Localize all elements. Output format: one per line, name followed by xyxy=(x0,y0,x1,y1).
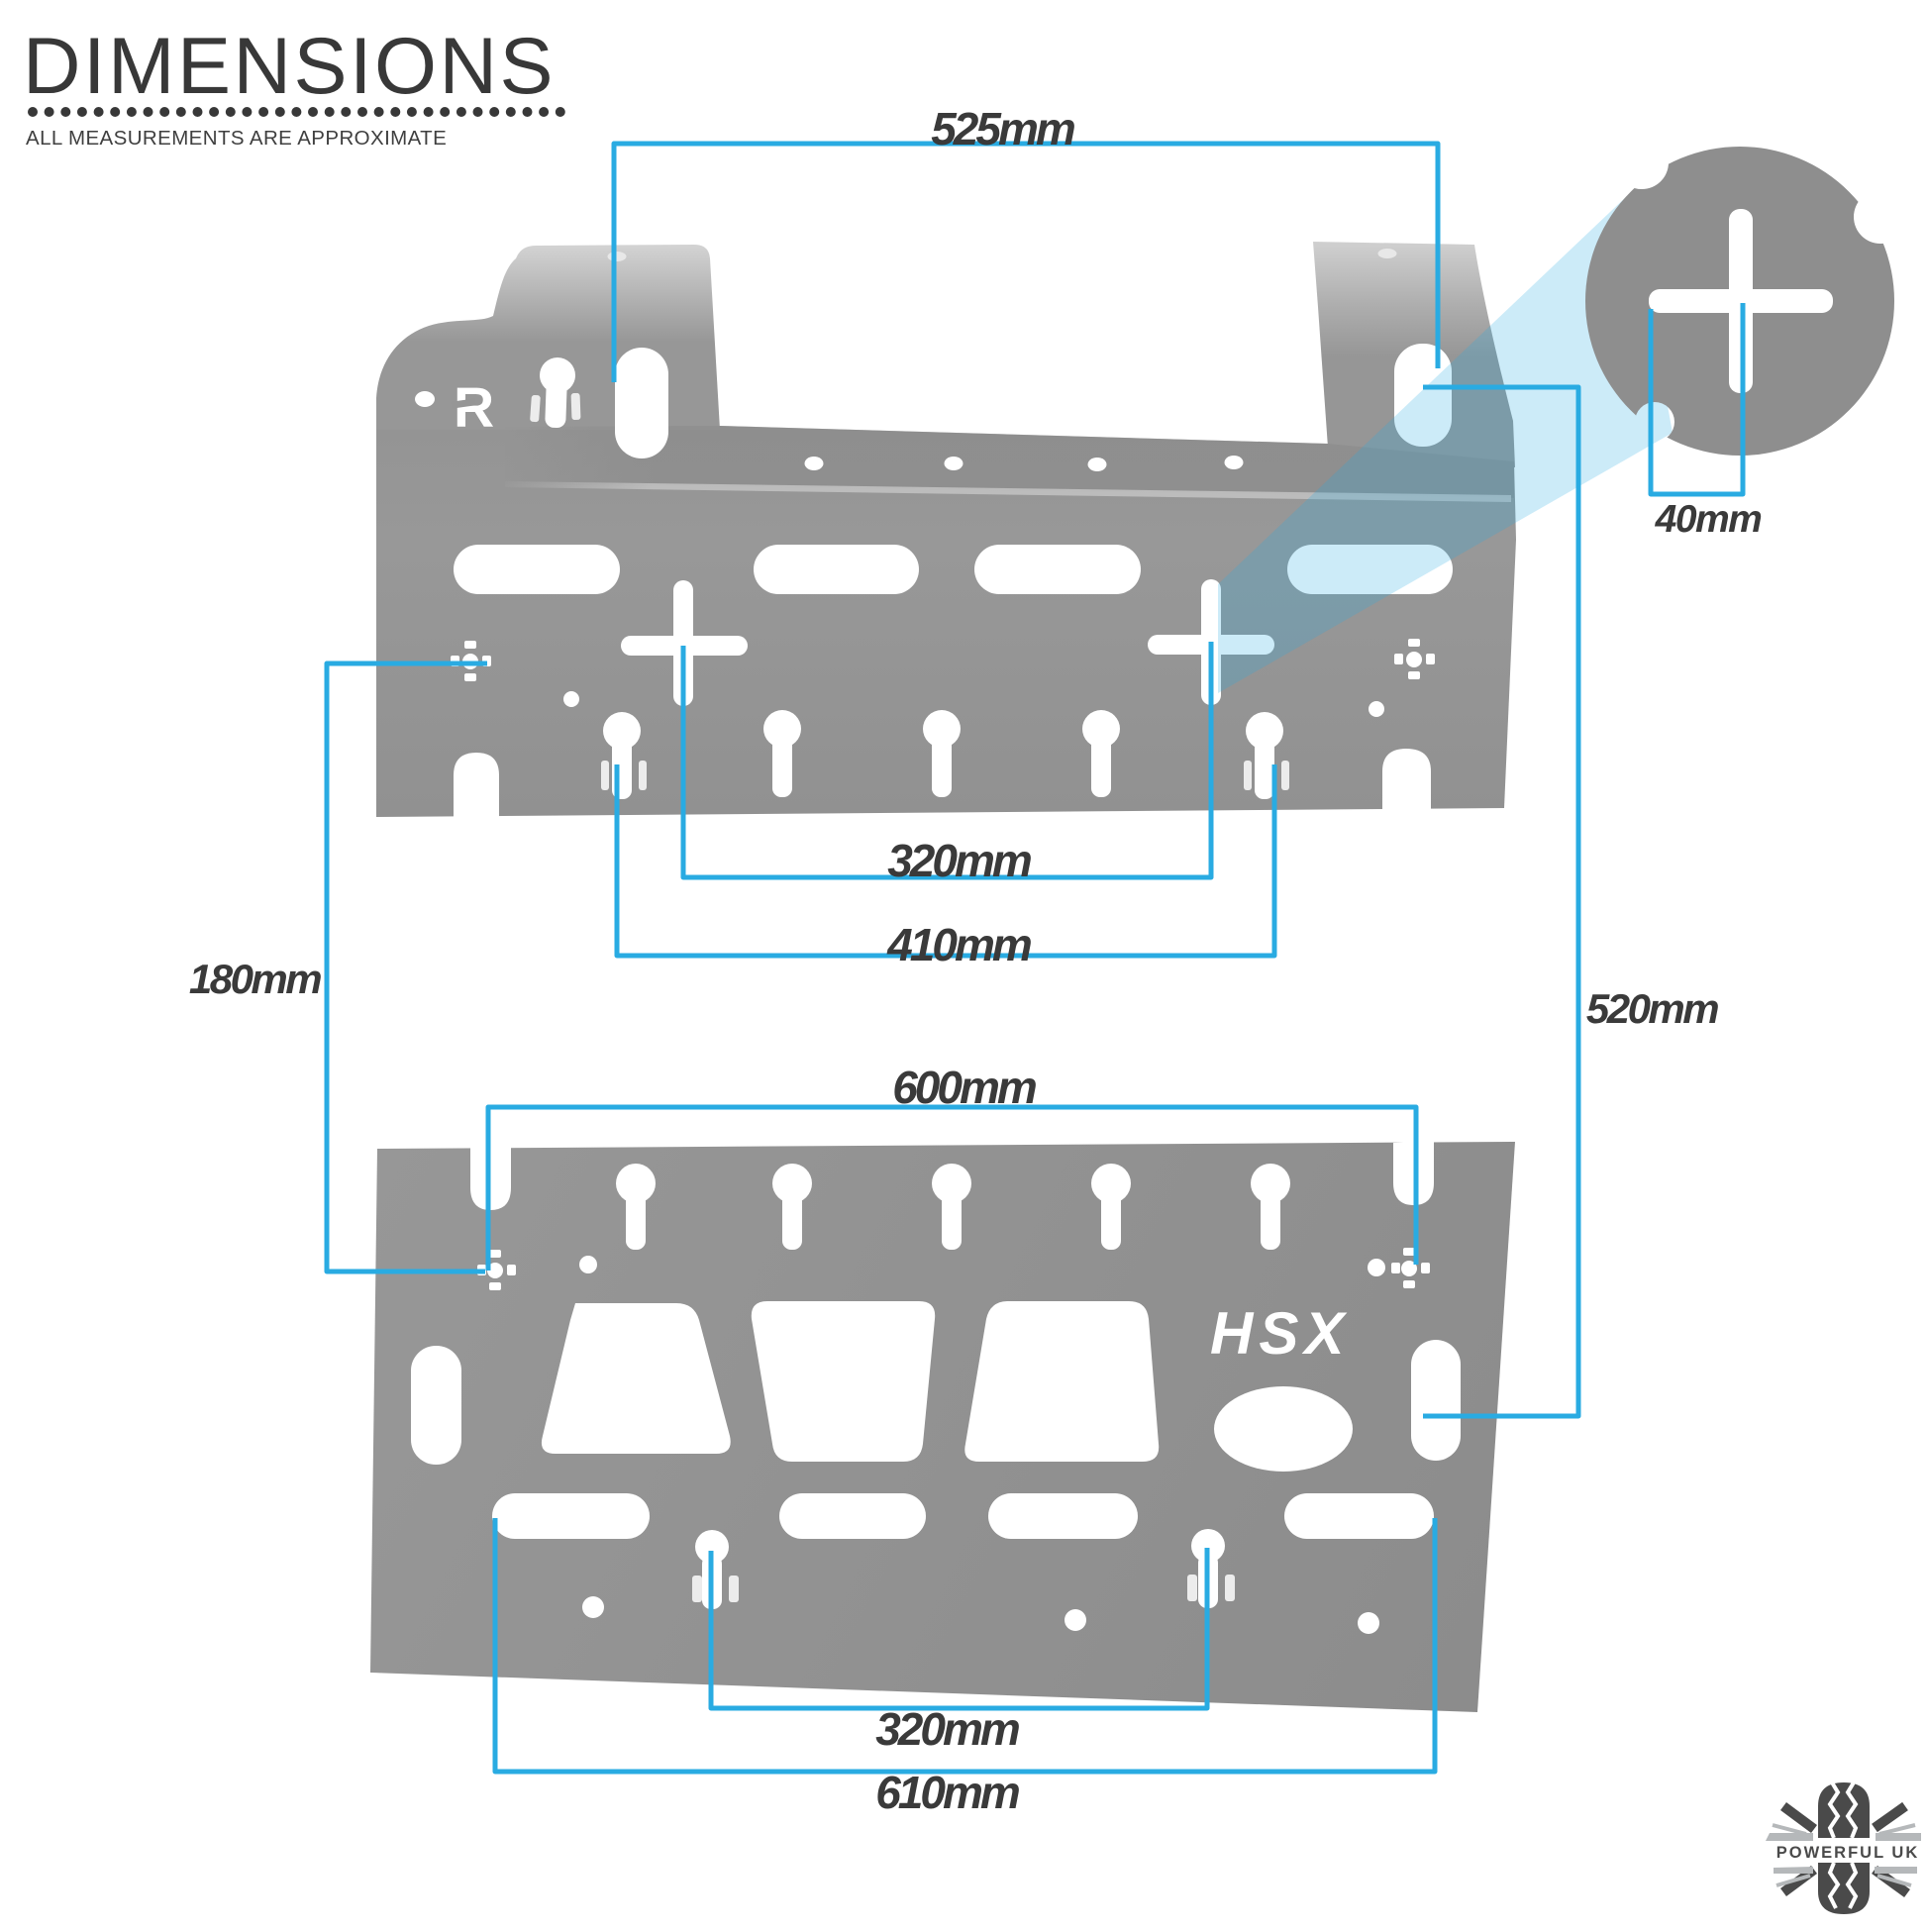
svg-text:525mm: 525mm xyxy=(931,103,1074,154)
svg-text:410mm: 410mm xyxy=(886,919,1031,970)
svg-text:610mm: 610mm xyxy=(875,1767,1019,1818)
svg-text:POWERFUL UK: POWERFUL UK xyxy=(1776,1844,1920,1862)
svg-text:600mm: 600mm xyxy=(892,1062,1036,1113)
svg-text:R: R xyxy=(454,376,494,440)
svg-text:180mm: 180mm xyxy=(189,956,321,1002)
svg-text:HSX: HSX xyxy=(1210,1300,1350,1367)
svg-text:320mm: 320mm xyxy=(887,835,1031,886)
svg-text:320mm: 320mm xyxy=(875,1703,1019,1755)
svg-text:520mm: 520mm xyxy=(1586,985,1718,1032)
svg-text:ALL MEASUREMENTS ARE APPROXIMA: ALL MEASUREMENTS ARE APPROXIMATE xyxy=(26,127,447,150)
svg-text:DIMENSIONS: DIMENSIONS xyxy=(23,22,556,111)
svg-text:40mm: 40mm xyxy=(1655,498,1763,541)
